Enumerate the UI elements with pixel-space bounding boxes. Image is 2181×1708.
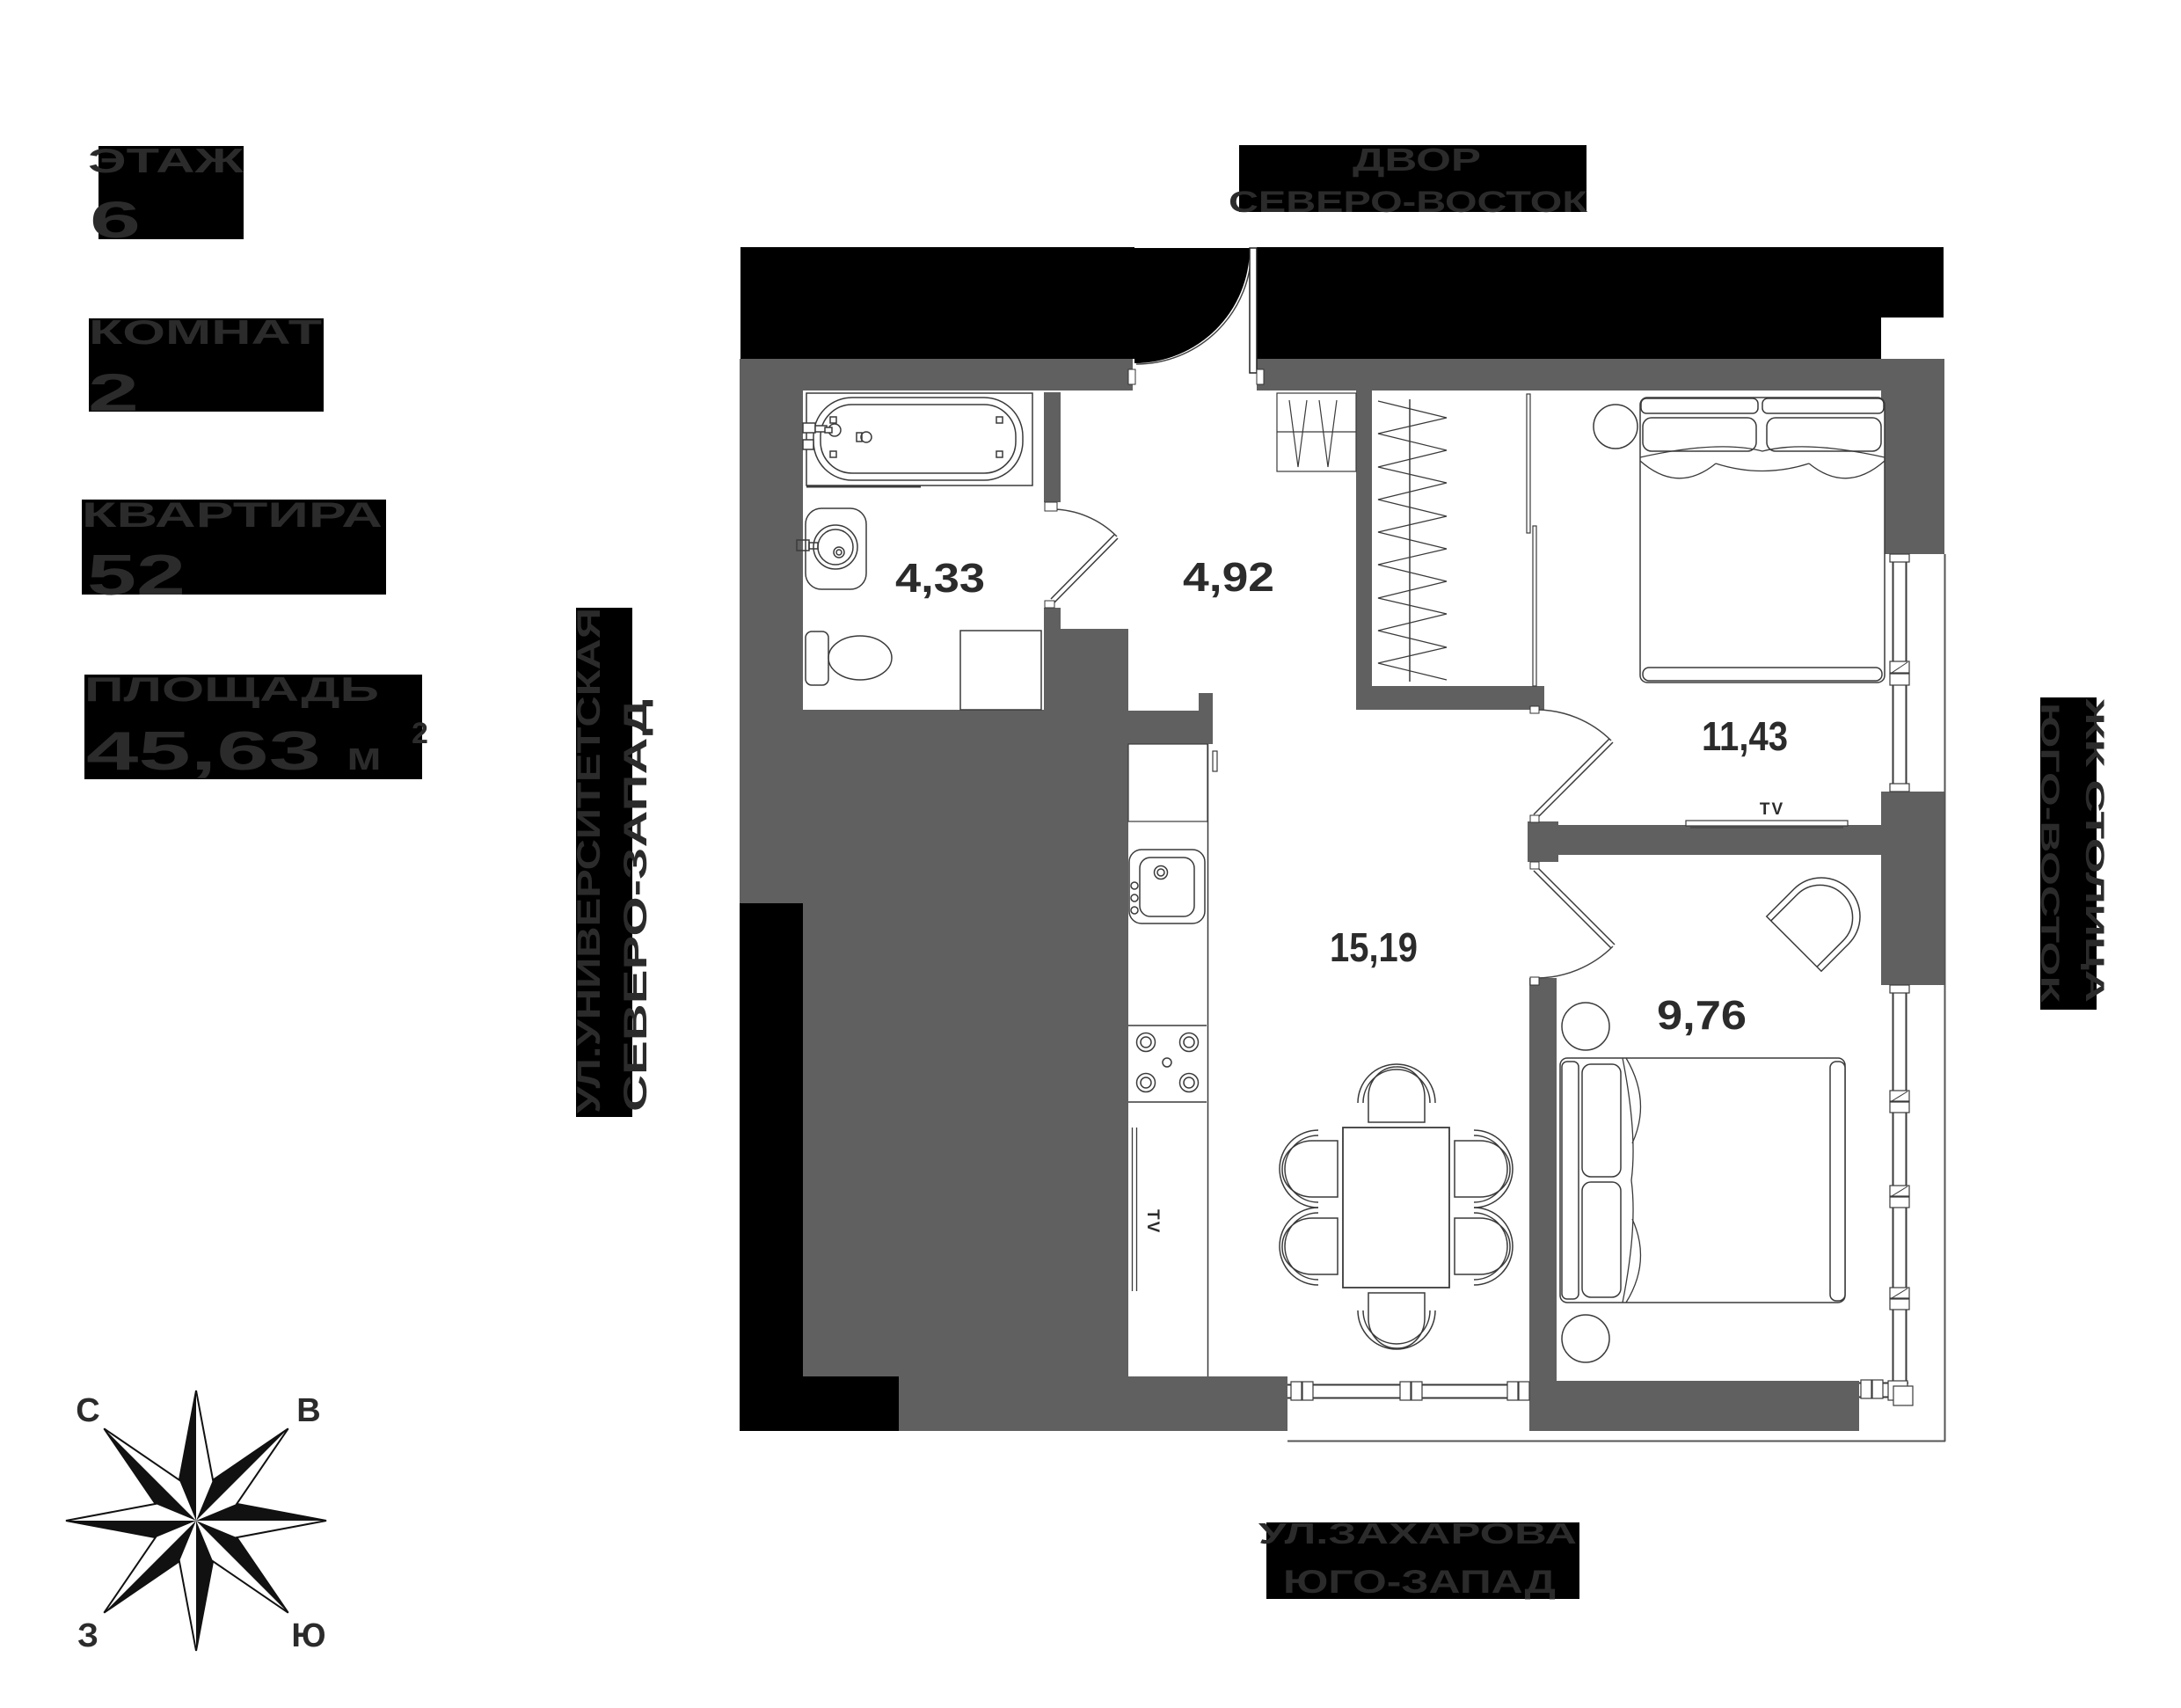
svg-text:6: 6 [90, 192, 141, 249]
svg-text:УЛ.УНИВЕРСИТЕТСКАЯ: УЛ.УНИВЕРСИТЕТСКАЯ [571, 608, 607, 1113]
svg-text:ДВОР: ДВОР [1353, 142, 1481, 178]
svg-text:4,92: 4,92 [1183, 554, 1274, 600]
svg-text:11,43: 11,43 [1702, 713, 1788, 759]
svg-text:В: В [296, 1392, 320, 1429]
svg-text:ЖК СТОЛИЦА: ЖК СТОЛИЦА [2080, 697, 2109, 1003]
svg-text:КОМНАТ: КОМНАТ [89, 314, 322, 352]
svg-text:4,33: 4,33 [895, 555, 985, 601]
svg-text:ЮГО-ВОСТОК: ЮГО-ВОСТОК [2035, 703, 2064, 1004]
svg-text:2: 2 [88, 363, 139, 422]
svg-text:45,63: 45,63 [86, 721, 321, 782]
svg-text:TV: TV [1143, 1209, 1162, 1234]
svg-text:ЭТАЖ: ЭТАЖ [88, 142, 244, 180]
svg-text:ПЛОЩАДЬ: ПЛОЩАДЬ [84, 671, 379, 709]
svg-text:Ю: Ю [291, 1617, 325, 1654]
svg-text:м: м [346, 734, 382, 778]
svg-text:СЕВЕРО-ВОСТОК: СЕВЕРО-ВОСТОК [1229, 186, 1587, 219]
svg-text:15,19: 15,19 [1330, 924, 1418, 970]
svg-text:СЕВЕРО-ЗАПАД: СЕВЕРО-ЗАПАД [617, 699, 653, 1112]
svg-text:КВАРТИРА: КВАРТИРА [82, 496, 383, 535]
svg-text:З: З [77, 1617, 98, 1654]
svg-text:С: С [76, 1392, 99, 1429]
svg-text:ЮГО-ЗАПАД: ЮГО-ЗАПАД [1283, 1564, 1556, 1600]
svg-text:TV: TV [1760, 800, 1784, 819]
svg-text:2: 2 [412, 717, 428, 750]
svg-text:9,76: 9,76 [1657, 992, 1747, 1038]
svg-text:УЛ.ЗАХАРОВА: УЛ.ЗАХАРОВА [1258, 1517, 1577, 1550]
svg-text:52: 52 [87, 543, 186, 607]
